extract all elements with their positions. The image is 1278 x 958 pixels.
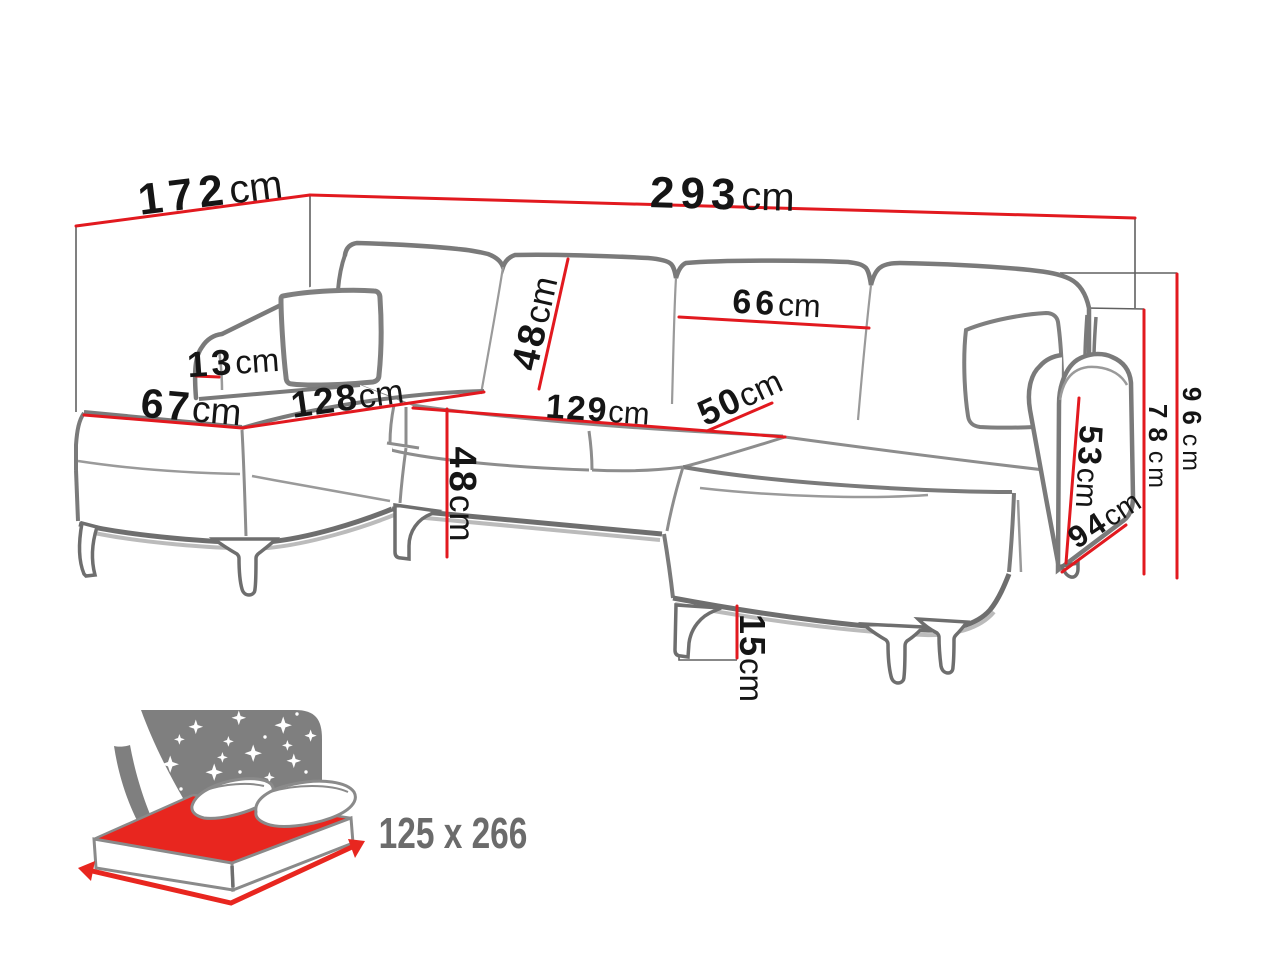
svg-text:48cm: 48cm xyxy=(441,447,483,542)
svg-text:125 x 266: 125 x 266 xyxy=(379,810,528,858)
svg-text:13cm: 13cm xyxy=(186,338,281,385)
svg-text:15cm: 15cm xyxy=(732,614,773,702)
svg-text:66cm: 66cm xyxy=(731,283,821,326)
svg-text:293cm: 293cm xyxy=(649,168,795,221)
svg-text:96cm: 96cm xyxy=(1177,387,1207,475)
svg-text:78cm: 78cm xyxy=(1143,404,1173,492)
